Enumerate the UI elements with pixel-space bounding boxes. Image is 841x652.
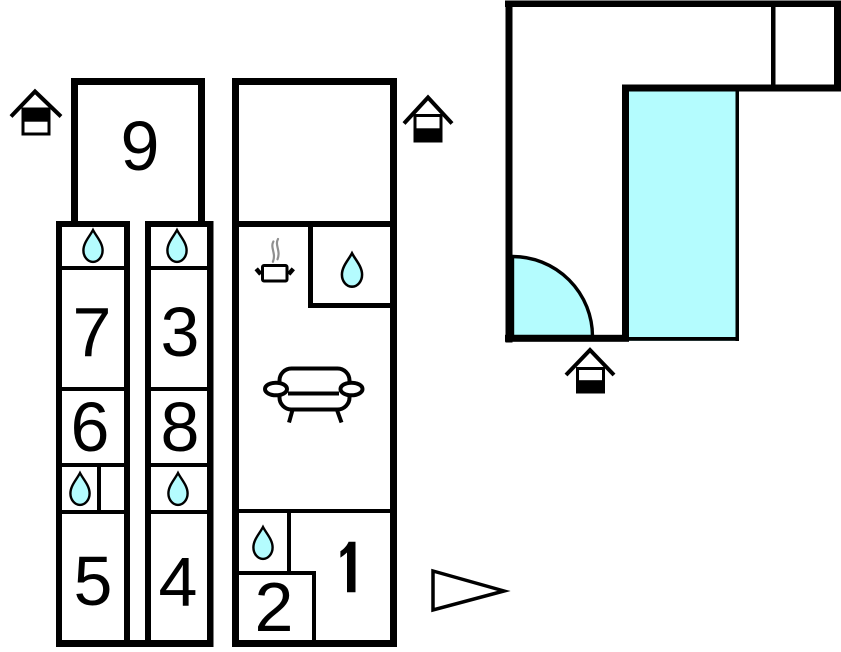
svg-text:5: 5 — [74, 542, 113, 620]
svg-text:8: 8 — [161, 388, 200, 466]
svg-text:6: 6 — [71, 388, 110, 466]
svg-text:2: 2 — [255, 568, 294, 646]
svg-text:3: 3 — [161, 293, 200, 371]
svg-text:9: 9 — [121, 107, 160, 185]
svg-text:7: 7 — [73, 293, 112, 371]
svg-text:4: 4 — [159, 543, 198, 621]
